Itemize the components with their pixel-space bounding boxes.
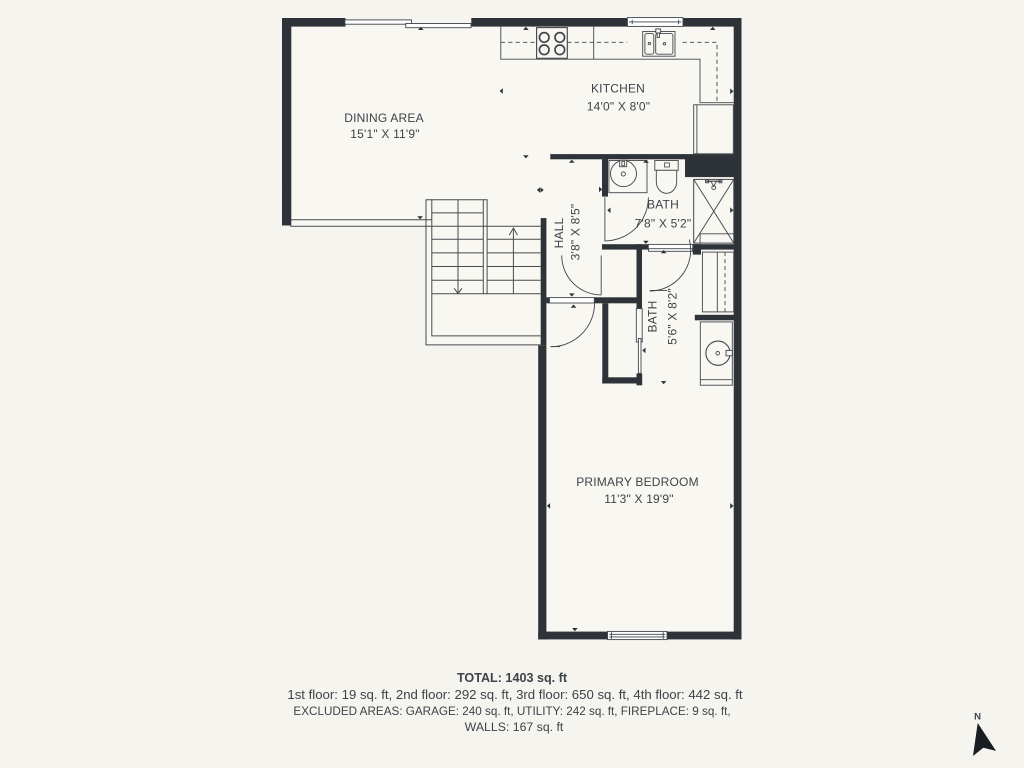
svg-text:15'1" X 11'9": 15'1" X 11'9" (350, 127, 420, 141)
svg-text:5'6" X 8'2": 5'6" X 8'2" (666, 288, 680, 345)
svg-text:N: N (974, 712, 981, 723)
svg-text:7'8" X 5'2": 7'8" X 5'2" (635, 216, 692, 230)
svg-text:3'8" X 8'5": 3'8" X 8'5" (569, 204, 583, 261)
svg-text:14'0" X 8'0": 14'0" X 8'0" (587, 99, 651, 113)
svg-text:WALLS: 167 sq. ft: WALLS: 167 sq. ft (465, 720, 564, 734)
svg-text:PRIMARY BEDROOM: PRIMARY BEDROOM (576, 475, 699, 489)
svg-text:KITCHEN: KITCHEN (591, 81, 645, 95)
svg-text:DINING AREA: DINING AREA (344, 111, 424, 125)
svg-text:11'3" X 19'9": 11'3" X 19'9" (604, 492, 674, 506)
svg-text:TOTAL: 1403 sq. ft: TOTAL: 1403 sq. ft (457, 671, 568, 685)
svg-text:EXCLUDED AREAS: GARAGE: 240 sq: EXCLUDED AREAS: GARAGE: 240 sq. ft, UTIL… (293, 705, 730, 718)
svg-text:1st floor: 19 sq. ft, 2nd floo: 1st floor: 19 sq. ft, 2nd floor: 292 sq.… (287, 687, 743, 702)
svg-text:BATH: BATH (647, 198, 679, 212)
svg-text:HALL: HALL (552, 217, 566, 248)
svg-text:BATH: BATH (646, 301, 660, 333)
